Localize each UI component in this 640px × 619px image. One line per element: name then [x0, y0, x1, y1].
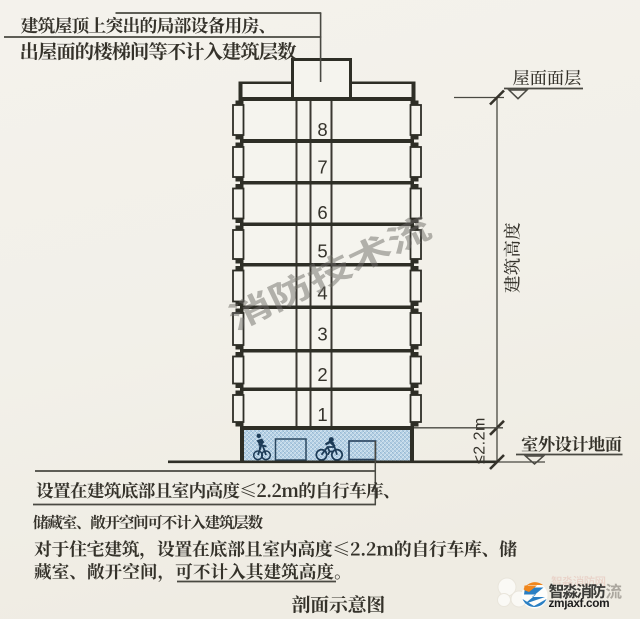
svg-text:6: 6	[317, 202, 327, 223]
svg-text:zmjaxf.com: zmjaxf.com	[549, 596, 610, 610]
svg-text:7: 7	[317, 157, 327, 178]
svg-text:3: 3	[317, 324, 327, 345]
svg-text:8: 8	[317, 119, 327, 140]
svg-text:2: 2	[317, 364, 327, 385]
svg-text:5: 5	[317, 241, 327, 262]
svg-text:≤2.2m: ≤2.2m	[472, 417, 489, 464]
svg-text:1: 1	[317, 404, 327, 425]
